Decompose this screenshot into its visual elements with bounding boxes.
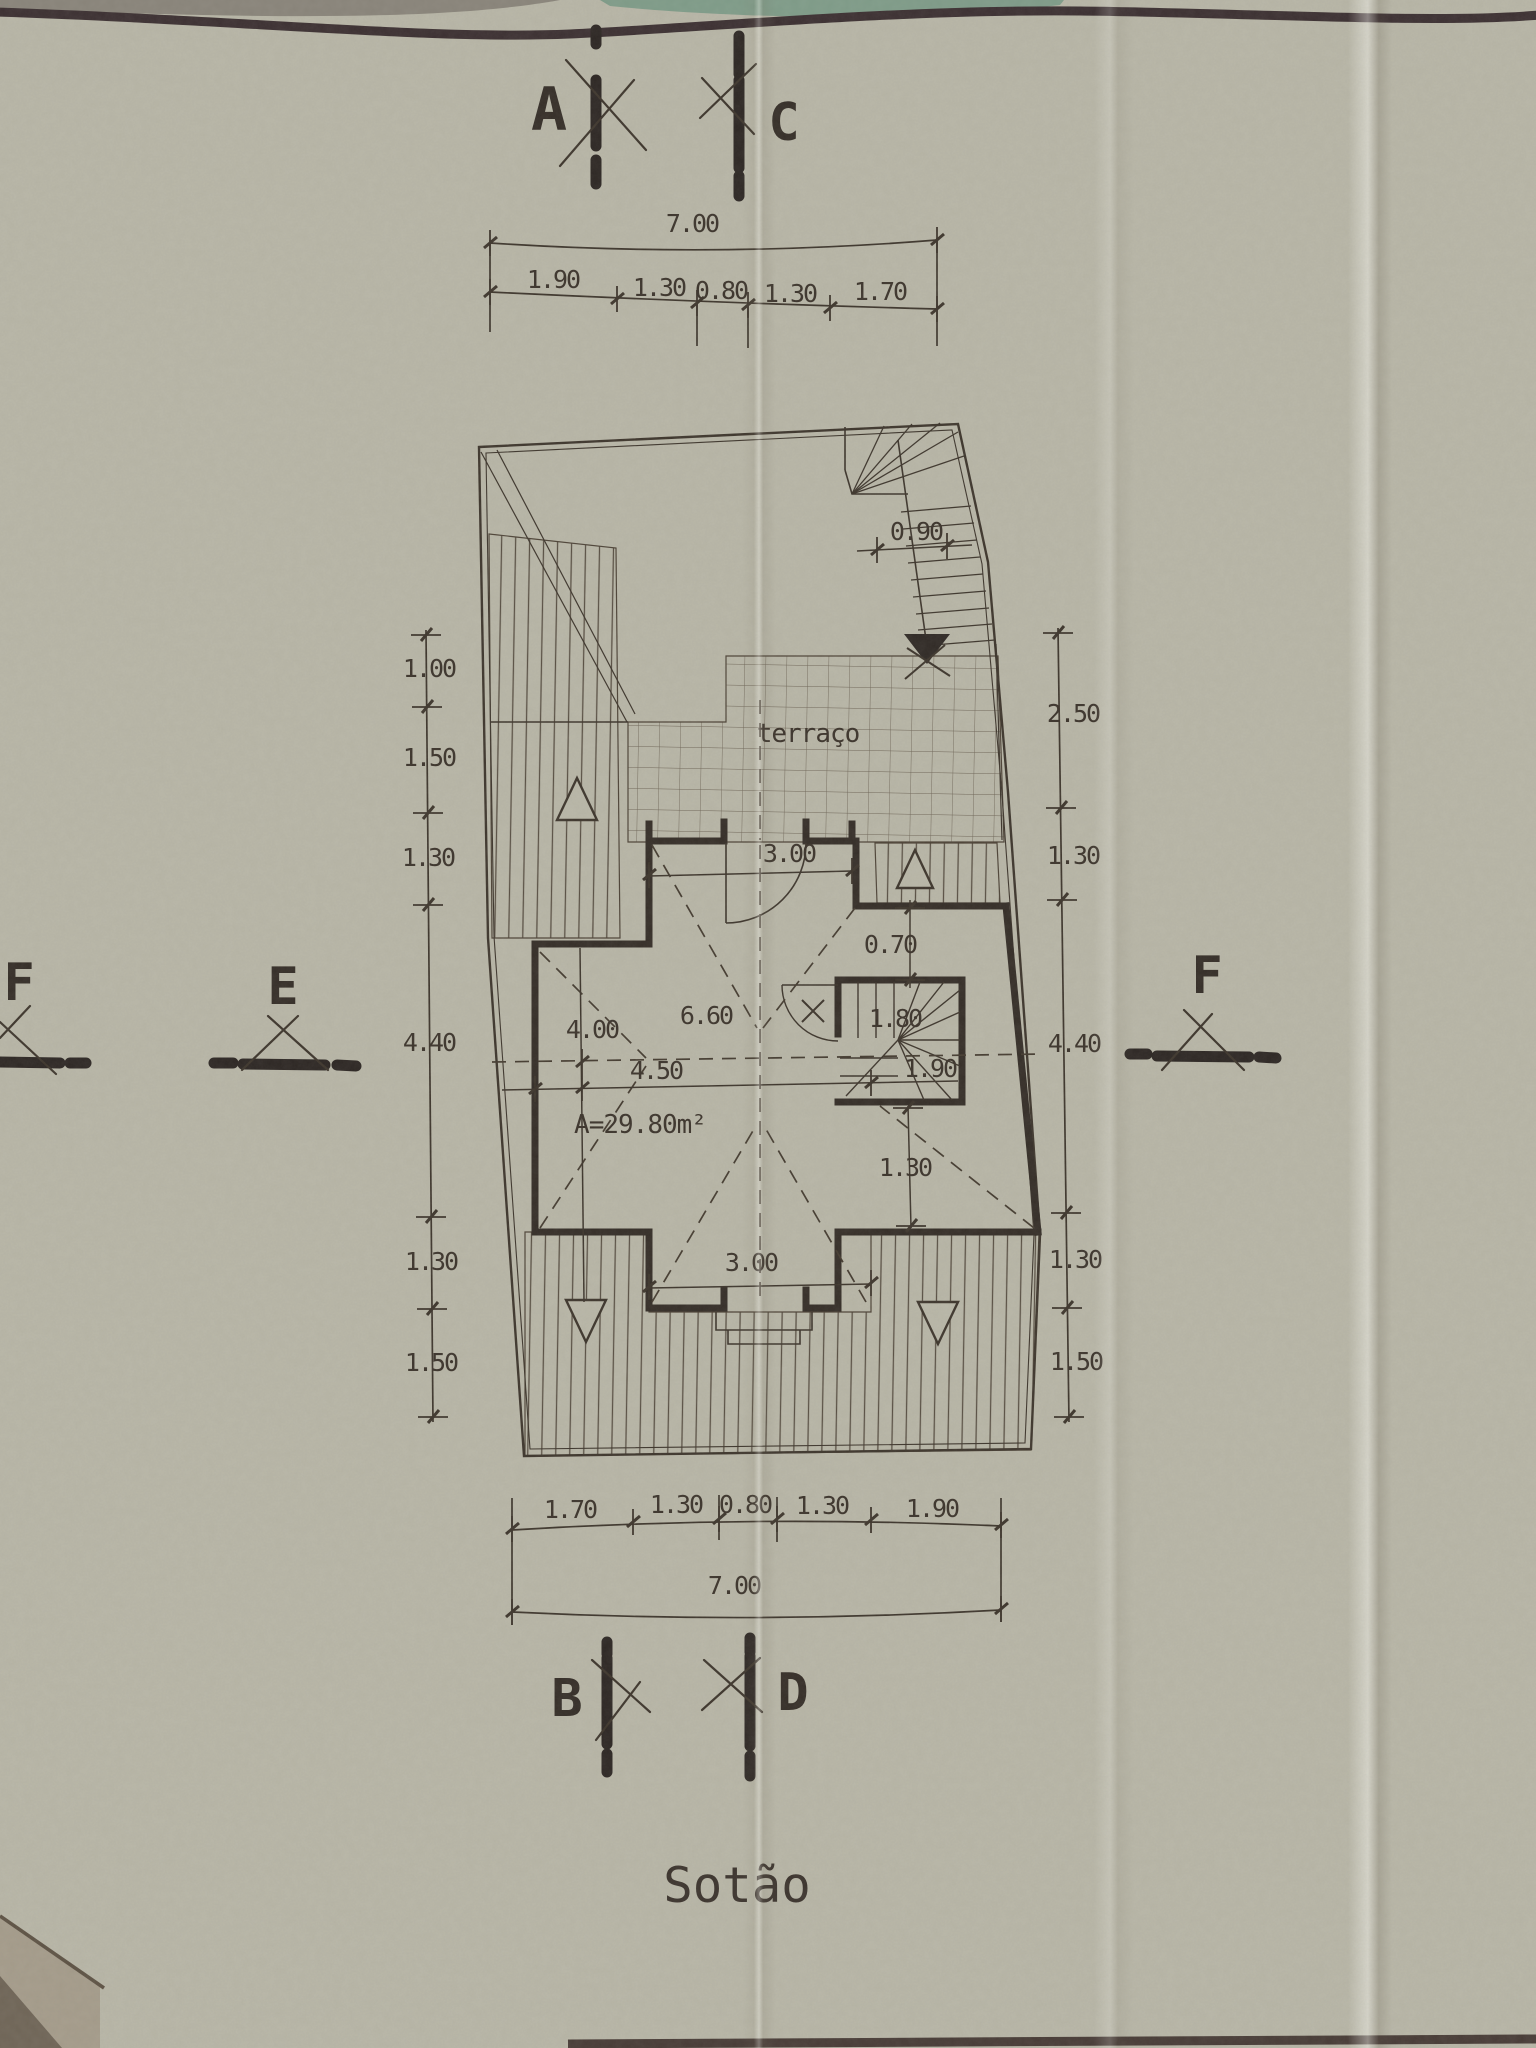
below-stair-label: 1.30	[879, 1153, 932, 1182]
marker-e-label: E	[267, 957, 296, 1017]
area-label: A=29.80m²	[574, 1110, 706, 1140]
dim-right-1: 2.50	[1047, 699, 1100, 728]
dim-right-2: 1.30	[1047, 841, 1100, 870]
dim-bottom-total: 7.00	[708, 1571, 761, 1600]
top-door-dim-label: 3.00	[763, 839, 816, 868]
marker-f-right-label: F	[1191, 946, 1220, 1006]
ridge-span-label: 6.60	[680, 1001, 733, 1030]
dim-left-5: 1.30	[405, 1247, 458, 1276]
marker-c-label: C	[768, 93, 797, 153]
bottom-door-dim-label: 3.00	[725, 1248, 778, 1277]
drawing-title: Sotão	[663, 1857, 811, 1914]
roof-hatch-left	[489, 534, 620, 938]
dim-top-seg1: 1.90	[527, 265, 580, 294]
dim-top-seg5: 1.70	[854, 277, 907, 306]
plan-fills	[489, 534, 1039, 1456]
marker-a-label: A	[531, 75, 567, 145]
dim-left-2: 1.50	[403, 743, 456, 772]
dim-left-6: 1.50	[405, 1348, 458, 1377]
stair-width-label: 0.90	[890, 517, 943, 546]
marker-f-left-edge-label: F	[3, 953, 32, 1013]
center-span-label: 4.50	[630, 1056, 683, 1085]
left-span-label: 4.00	[566, 1015, 619, 1044]
dim-top-total: 7.00	[666, 209, 719, 238]
dim-top-seg4: 1.30	[764, 279, 817, 308]
roof-hatch-right-upper	[875, 843, 1000, 903]
dim-top: 7.00 1.90 1.30 0.80 1.30 1.70	[484, 209, 944, 348]
dim-left-1: 1.00	[403, 654, 456, 683]
marker-b-label: B	[551, 1669, 581, 1729]
dim-top-seg3: 0.80	[695, 276, 748, 305]
dim-bottom-seg5: 1.90	[906, 1494, 959, 1523]
terrace-label: terraço	[757, 719, 860, 749]
dim-right-5: 1.50	[1050, 1347, 1103, 1376]
blueprint-photo: A C B D E F F 7.00 1.90 1.30 0.80 1.30 1…	[0, 0, 1536, 2048]
dim-top-seg2: 1.30	[633, 273, 686, 302]
terrace-tiles	[628, 656, 1004, 842]
page-bottom-edge	[0, 1916, 1536, 2048]
dim-right-4: 1.30	[1049, 1245, 1102, 1274]
exterior-stair	[845, 423, 995, 679]
page-top-edge	[0, 0, 1536, 35]
stair-d-label: 1.90	[904, 1054, 957, 1083]
dim-bottom-seg2: 1.30	[650, 1490, 703, 1519]
dim-bottom-seg4: 1.30	[796, 1491, 849, 1520]
dim-bottom-seg1: 1.70	[544, 1495, 597, 1524]
dim-left-4: 4.40	[403, 1028, 456, 1057]
passage-dim-label: 0.70	[864, 930, 917, 959]
dim-right-3: 4.40	[1048, 1029, 1101, 1058]
dim-bottom: 1.70 1.30 0.80 1.30 1.90 7.00	[506, 1490, 1008, 1625]
marker-d-label: D	[777, 1663, 806, 1723]
dim-bottom-seg3: 0.80	[719, 1490, 772, 1519]
stair-w-label: 1.80	[869, 1004, 922, 1033]
dim-left-3: 1.30	[402, 843, 455, 872]
floor-plan-drawing: A C B D E F F 7.00 1.90 1.30 0.80 1.30 1…	[0, 0, 1536, 2048]
dim-right-column: 2.50 1.30 4.40 1.30 1.50	[1043, 626, 1103, 1423]
dim-left-column: 1.00 1.50 1.30 4.40 1.30 1.50	[402, 628, 458, 1423]
